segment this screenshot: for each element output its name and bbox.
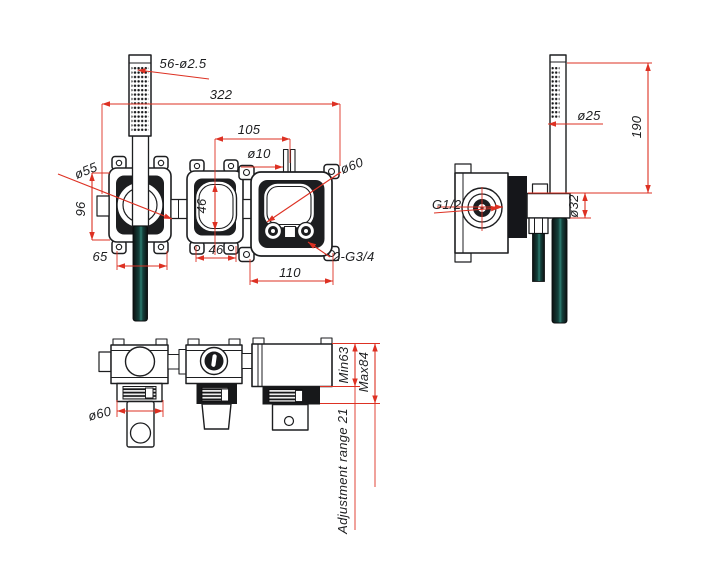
valve-body-3 (239, 150, 339, 262)
dim-handset-dia: ø25 (577, 108, 601, 123)
bottom-unit-1 (99, 339, 168, 447)
hand-shower-handle (133, 136, 149, 226)
dim-valve-center-spacing: 105 (238, 122, 261, 137)
valve-body-side (455, 164, 527, 262)
shower-hose (133, 226, 148, 321)
dim-bracket-outlet-dia: ø32 (566, 194, 581, 218)
dim-handset-length: 190 (629, 115, 644, 138)
drawing-canvas: 322 56-ø2.5 105 ø10 ø55 96 46 46 (0, 0, 708, 577)
spout-outlet (131, 423, 151, 443)
inlet-stub-bottom (99, 352, 111, 372)
bottom-view: ø60 Min63 Max84 Adjustment range 21 (87, 338, 380, 535)
bottom-unit-3 (242, 338, 332, 430)
bottom-unit-2 (168, 339, 242, 429)
dim-min-depth: Min63 (336, 346, 351, 383)
bracket-bolt-shaft (533, 234, 545, 282)
dim-outlet-port-spacing: 110 (279, 265, 301, 280)
inlet-stub (97, 196, 109, 216)
dim-inlet-pipe-dia: ø10 (247, 146, 271, 161)
front-view: 322 56-ø2.5 105 ø10 ø55 96 46 46 (58, 55, 375, 321)
hand-shower-side (527, 55, 570, 323)
side-view: ø25 190 ø32 G1/2 (432, 55, 652, 323)
dim-cartridge-opening-height: 46 (194, 198, 209, 214)
bracket-bolt-head (529, 218, 548, 234)
spout-hole (285, 417, 294, 426)
dim-valve-opening-dia: ø60 (338, 154, 366, 177)
dim-spout-width-dia: ø60 (87, 403, 114, 423)
dim-handle-offset: 65 (92, 249, 108, 264)
shower-hose-side (552, 218, 567, 323)
drawing-sheet: 322 56-ø2.5 105 ø10 ø55 96 46 46 (0, 0, 708, 577)
dim-cartridge-opening-width: 46 (208, 242, 224, 257)
cartridge-section (508, 176, 527, 238)
wall-bracket (527, 194, 570, 219)
spout (202, 404, 231, 429)
dim-handle-escutcheon-dia: ø55 (72, 159, 100, 182)
inlet-pipe (284, 150, 289, 173)
hand-shower-front (129, 55, 151, 321)
control-knob (126, 347, 155, 376)
dim-outlet-thread: 2-G3/4 (332, 249, 375, 264)
dim-overall-width: 322 (210, 87, 233, 102)
spray-face (132, 66, 149, 131)
dim-max-depth: Max84 (356, 352, 371, 393)
spray-face-side (552, 67, 560, 118)
inlet-pipe (291, 150, 296, 173)
dim-escutcheon-height: 96 (73, 201, 88, 217)
dim-adjustment-range: Adjustment range 21 (335, 408, 350, 535)
mounting-ear (190, 242, 204, 254)
connector-pipe (171, 200, 188, 219)
dim-inlet-thread: G1/2 (432, 197, 462, 212)
dim-spray-nozzles: 56-ø2.5 (160, 56, 207, 71)
